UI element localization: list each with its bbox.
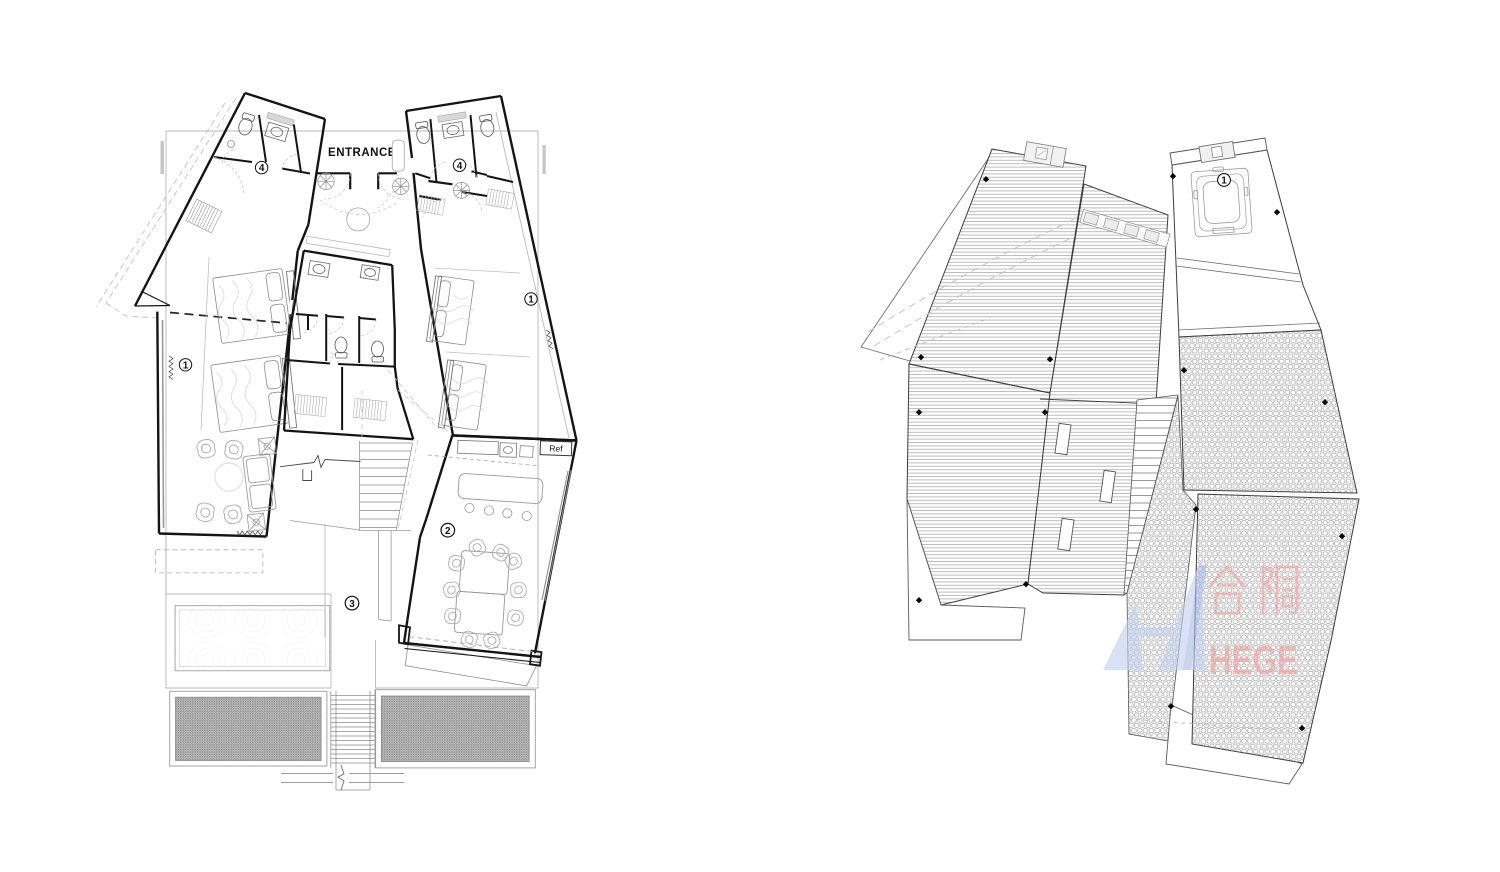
svg-text:2: 2	[445, 526, 451, 537]
svg-text:4: 4	[259, 163, 265, 174]
svg-text:1: 1	[183, 360, 189, 371]
svg-text:ENTRANCE: ENTRANCE	[328, 147, 396, 159]
svg-text:HEGE: HEGE	[1209, 637, 1298, 683]
svg-text:1: 1	[1221, 176, 1227, 187]
svg-text:4: 4	[457, 161, 463, 172]
svg-text:Ref: Ref	[549, 443, 563, 453]
svg-text:1: 1	[528, 295, 534, 306]
svg-text:3: 3	[349, 599, 355, 610]
